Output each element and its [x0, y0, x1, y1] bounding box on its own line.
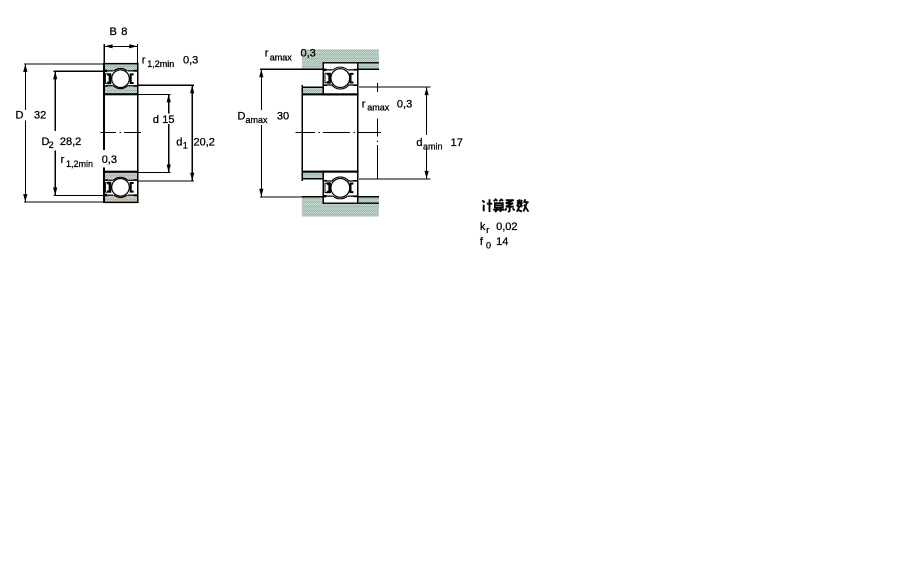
svg-text:r: r [142, 54, 146, 66]
svg-text:0,3: 0,3 [183, 54, 198, 66]
svg-text:r: r [486, 225, 489, 235]
svg-text:0: 0 [486, 240, 491, 250]
svg-text:D: D [238, 111, 246, 123]
svg-text:17: 17 [451, 137, 463, 149]
svg-text:r: r [265, 47, 269, 59]
svg-text:28,2: 28,2 [60, 136, 81, 148]
svg-text:amax: amax [270, 52, 293, 62]
svg-text:k: k [480, 221, 486, 233]
svg-text:r: r [61, 154, 65, 166]
svg-text:0,3: 0,3 [397, 99, 412, 111]
svg-text:d: d [176, 136, 182, 148]
svg-text:15: 15 [162, 114, 174, 126]
svg-text:30: 30 [277, 111, 289, 123]
svg-text:14: 14 [496, 236, 508, 248]
svg-text:d: d [416, 137, 422, 149]
svg-text:0,3: 0,3 [102, 154, 117, 166]
svg-text:D: D [16, 110, 24, 122]
svg-text:32: 32 [34, 110, 46, 122]
svg-text:amin: amin [423, 141, 443, 151]
svg-text:0,02: 0,02 [496, 221, 517, 233]
svg-text:B: B [110, 26, 117, 38]
svg-text:1: 1 [183, 141, 188, 151]
svg-text:2: 2 [49, 140, 54, 150]
svg-text:1,2min: 1,2min [147, 59, 174, 69]
svg-text:r: r [362, 99, 366, 111]
svg-text:8: 8 [121, 26, 127, 38]
svg-text:d: d [153, 114, 159, 126]
svg-text:0,3: 0,3 [301, 47, 316, 59]
svg-text:amax: amax [246, 115, 269, 125]
svg-text:20,2: 20,2 [194, 136, 215, 148]
svg-text:1,2min: 1,2min [66, 159, 93, 169]
svg-text:amax: amax [367, 103, 390, 113]
